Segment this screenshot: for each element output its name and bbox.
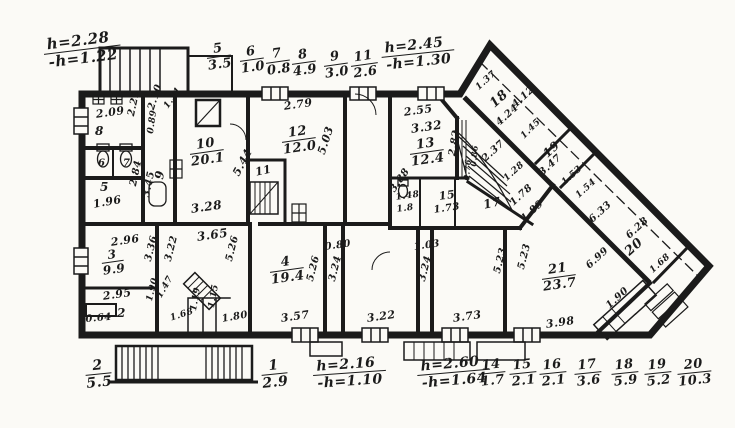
staircase-bottom-icon xyxy=(110,346,258,382)
interior-walls xyxy=(82,94,688,335)
staircase-top-icon xyxy=(100,48,232,92)
shower-icon xyxy=(250,182,278,214)
flue-icon xyxy=(196,100,220,126)
chimney-hatch-icon xyxy=(184,273,221,310)
balcony-icons xyxy=(310,280,688,360)
floor-plan-drawing xyxy=(0,0,735,428)
floor-plan-page: 53.561.070.884.993.0112.6h=2.28-h=1.22h=… xyxy=(0,0,735,428)
